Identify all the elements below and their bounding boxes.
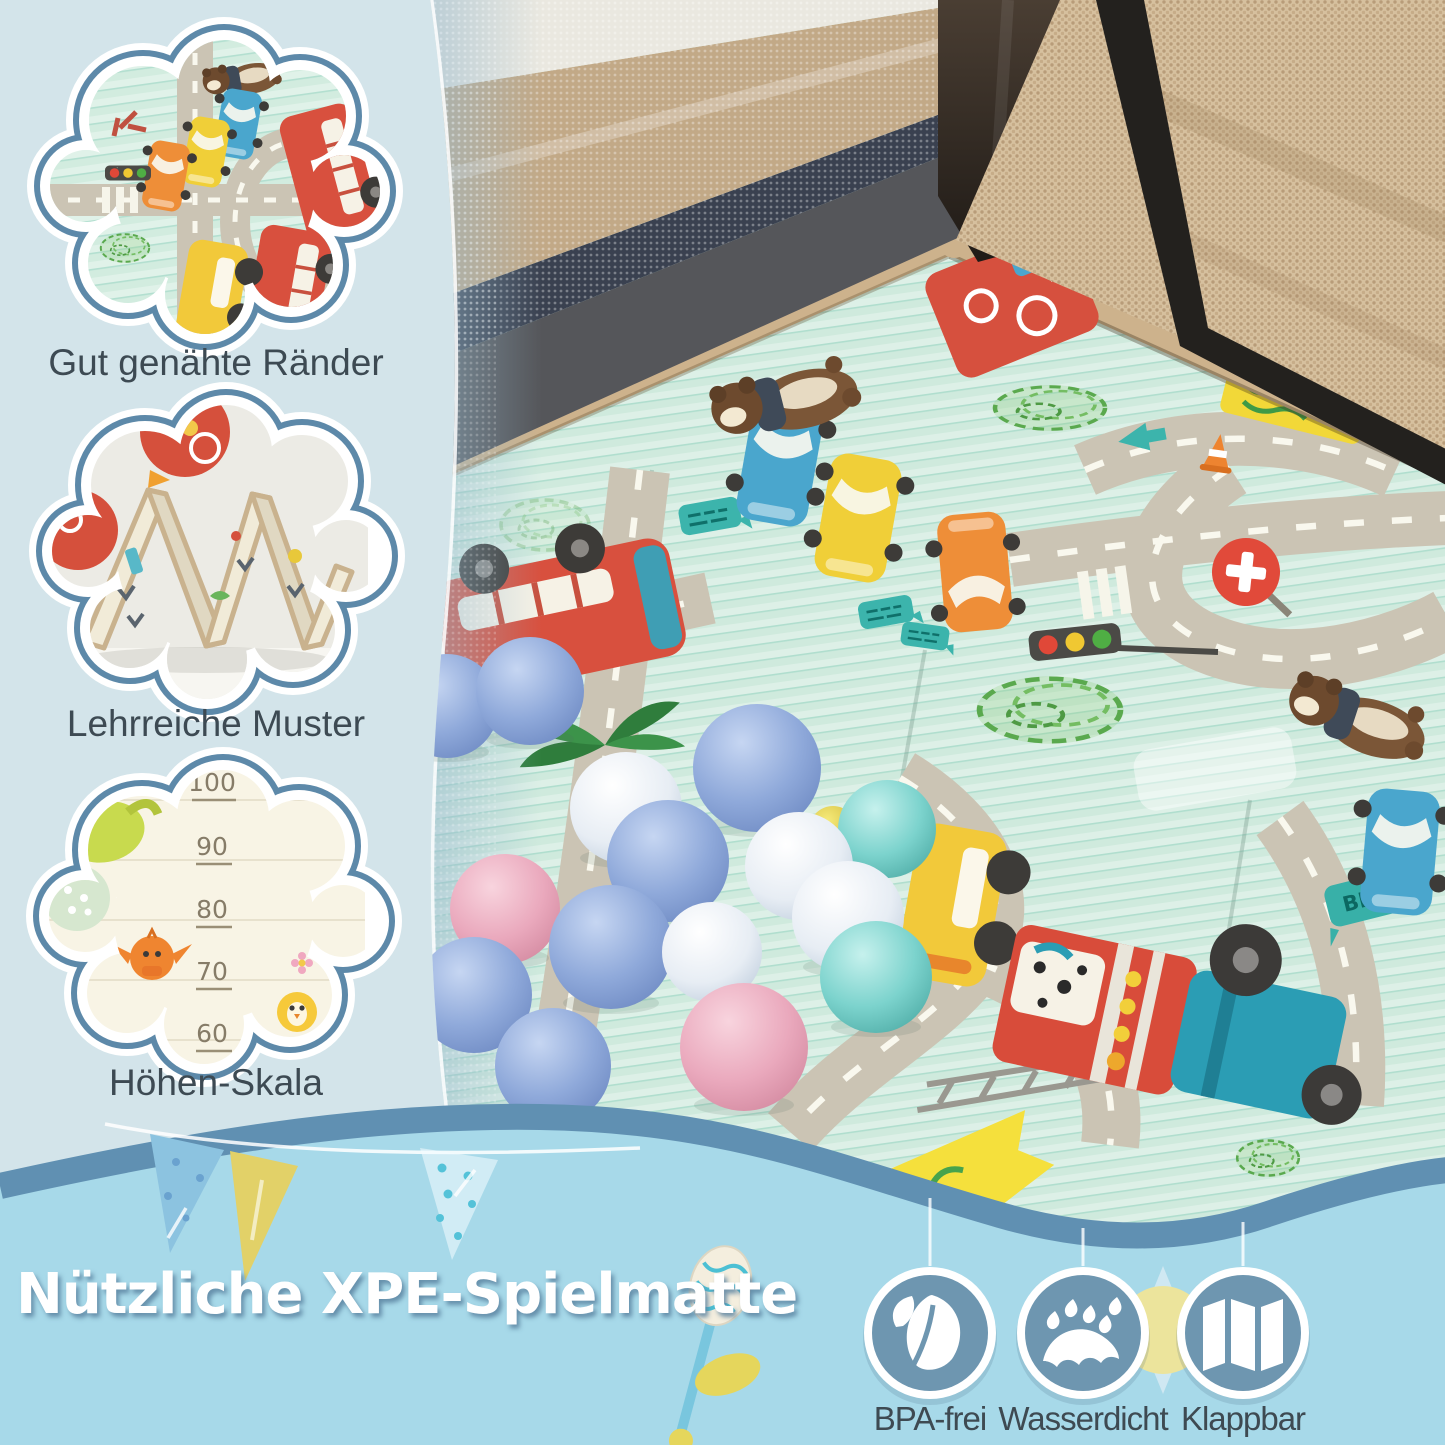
badge-cloud-folded-mat (28, 387, 392, 718)
scale-value: 60 (196, 1019, 228, 1048)
ball (820, 921, 932, 1033)
feature-icon-waterproof (1016, 1267, 1150, 1405)
badge-caption-height-scale: Höhen-Skala (0, 1062, 432, 1104)
scale-value: 80 (196, 895, 228, 924)
ball (476, 637, 584, 745)
feature-icon-bpa (863, 1267, 997, 1405)
product-infographic: BEEP (0, 0, 1445, 1445)
folded-mat-icon (1203, 1299, 1283, 1371)
scale-value: 90 (196, 832, 228, 861)
badge-cloud-stitched-edges (25, 20, 405, 380)
ball (549, 885, 673, 1009)
page-title: Nützliche XPE-Spielmatte (16, 1262, 876, 1327)
badge-caption-stitched-edges: Gut genähte Ränder (0, 342, 432, 384)
feature-label-foldable: Klappbar (1123, 1400, 1363, 1438)
tree (976, 676, 1123, 744)
badge-caption-patterns: Lehrreiche Muster (0, 703, 432, 745)
chick-print (277, 992, 317, 1032)
feature-icon-foldable (1176, 1267, 1310, 1405)
tree (1236, 1139, 1300, 1177)
badge-cloud-height-scale: 100 90 80 70 60 (25, 752, 389, 1087)
scale-value: 70 (196, 957, 228, 986)
ball (680, 983, 808, 1111)
tree (993, 385, 1108, 431)
